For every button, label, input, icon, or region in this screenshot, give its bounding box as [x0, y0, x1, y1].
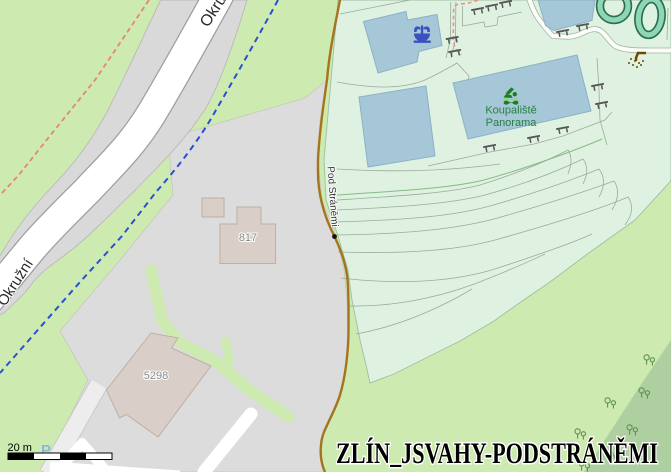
svg-text:5298: 5298: [144, 370, 168, 382]
svg-text:20 m: 20 m: [8, 442, 32, 454]
svg-text:Koupaliště: Koupaliště: [485, 105, 536, 117]
svg-text:ZLÍN_JSVAHY-PODSTRÁNĚMI: ZLÍN_JSVAHY-PODSTRÁNĚMI: [336, 437, 658, 470]
svg-text:Panorama: Panorama: [486, 117, 538, 129]
svg-text:817: 817: [239, 232, 257, 244]
